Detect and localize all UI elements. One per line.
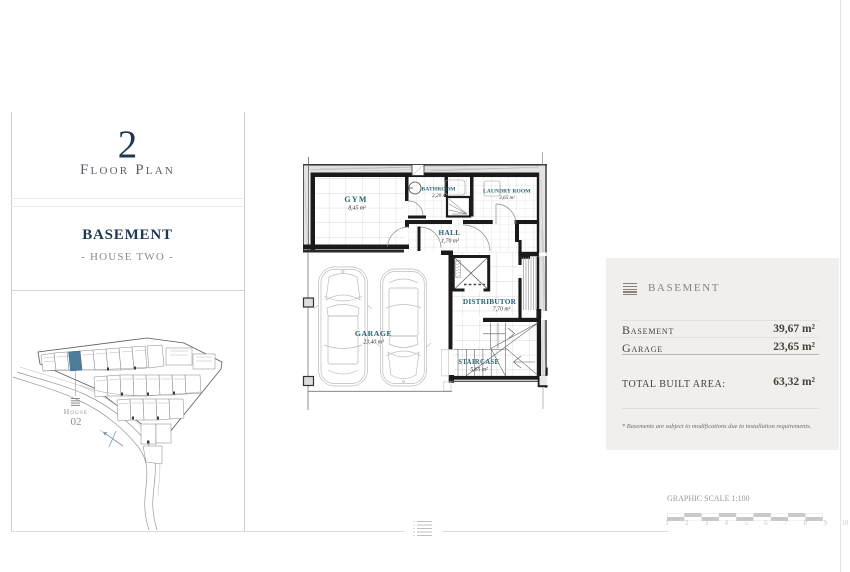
svg-text:3,65 m²: 3,65 m² [499,195,515,201]
svg-text:House: House [64,407,88,416]
svg-text:HALL: HALL [439,229,461,237]
svg-text:LAUNDRY ROOM: LAUNDRY ROOM [483,188,531,194]
svg-text:5,65 m²: 5,65 m² [470,367,488,373]
svg-text:GARAGE: GARAGE [355,329,392,338]
svg-text:DISTRIBUTOR: DISTRIBUTOR [463,297,517,306]
svg-text:2,20 m²: 2,20 m² [432,193,448,199]
svg-text:7,70 m²: 7,70 m² [493,307,511,313]
svg-text:GYM: GYM [344,195,367,204]
svg-text:23,40 m²: 23,40 m² [363,339,384,346]
svg-text:02: 02 [71,416,82,428]
svg-text:STAIRCASE: STAIRCASE [458,359,499,366]
svg-text:1,70 m²: 1,70 m² [441,239,459,245]
svg-text:BATHROOM: BATHROOM [421,187,456,193]
svg-text:8,45 m²: 8,45 m² [348,205,366,212]
